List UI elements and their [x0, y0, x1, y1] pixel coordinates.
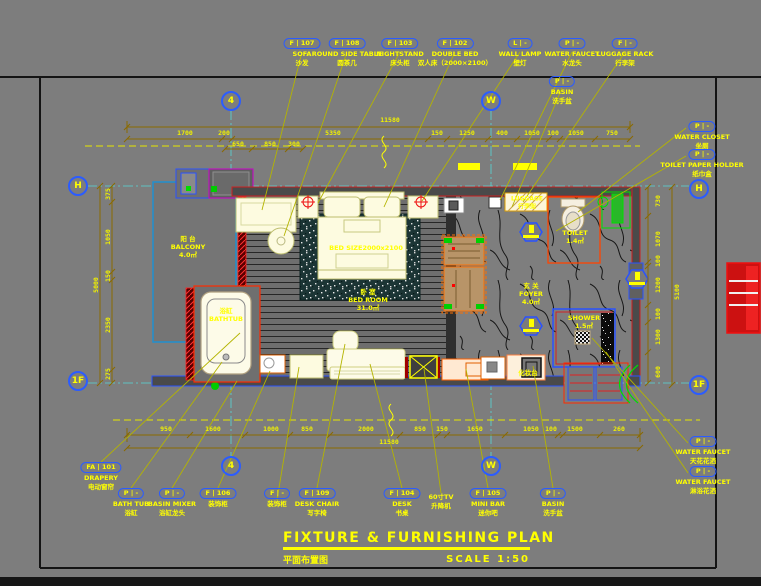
callout-bath-tub: P | - BATH TUB 浴缸	[113, 488, 149, 517]
room-label-luggage: LUGGAGE行李架	[511, 196, 543, 211]
dim-label: 750	[606, 130, 618, 137]
callout-code: P | -	[689, 121, 715, 132]
callout-nightstand: F | 103 NIGHTSTAND 床头柜	[376, 38, 424, 67]
callout-code: F | -	[612, 38, 638, 49]
callout-label-en: WATER FAUCET	[545, 50, 600, 58]
callout-code: F | 104	[384, 488, 421, 499]
callout-code: L | -	[507, 38, 533, 49]
dim-label: 1700	[177, 130, 193, 137]
dim-label: 100	[655, 255, 662, 267]
dim-label: 1300	[655, 329, 662, 345]
callout-label-en: BASIN	[551, 88, 574, 96]
callout-desk: F | 104 DESK 书桌	[384, 488, 421, 517]
callout-basin-bottom: P | - BASIN 洗手盆	[540, 488, 566, 517]
room-label-foyer: 玄 关FOYER4.0㎡	[519, 282, 543, 306]
callout-label-zh: 洗手盆	[543, 509, 563, 517]
callout-wall-lamp: L | - WALL LAMP 壁灯	[499, 38, 542, 67]
callout-label-en: WALL LAMP	[499, 50, 542, 58]
dim-label: 100	[545, 426, 557, 433]
bed-size-label: BED SIZE2000x2100	[329, 244, 403, 252]
dim-label: 850	[301, 426, 313, 433]
title-underline	[283, 547, 530, 550]
grid-bubble-1f-right: 1F	[689, 375, 709, 395]
dim-label: 850	[264, 141, 276, 148]
callout-tv-lift: 60寸TV 升降机	[428, 493, 453, 510]
callout-label-zh: 迷你吧	[478, 509, 498, 517]
callout-code: P | -	[118, 488, 144, 499]
dim-label: 150	[436, 426, 448, 433]
dim-left-total: 5000	[93, 277, 100, 293]
callout-label-en: NIGHTSTAND	[376, 50, 424, 58]
callout-label-zh: 浴缸龙头	[159, 509, 185, 517]
callout-code: F | 102	[437, 38, 474, 49]
callout-code: F | 109	[299, 488, 336, 499]
callout-label-zh: 装饰柜	[267, 500, 287, 508]
callout-label-en: SOFA	[293, 50, 312, 58]
callout-code: F | -	[264, 488, 290, 499]
dim-label: 1600	[205, 426, 221, 433]
callout-label-zh: 天花花洒	[690, 457, 716, 465]
callout-mini-bar: F | 105 MINI BAR 迷你吧	[470, 488, 507, 517]
callout-label-zh: 洗手盆	[552, 97, 572, 105]
callout-water-faucet-shower: P | - WATER FAUCET 淋浴花洒	[676, 466, 731, 495]
dim-label: 1050	[524, 130, 540, 137]
drawing-scale: SCALE 1:50	[418, 554, 530, 565]
dim-label: 150	[431, 130, 443, 137]
callout-basin-top: P | - BASIN 洗手盆	[549, 76, 575, 105]
callout-label-zh: 装饰柜	[208, 500, 228, 508]
dim-label: 260	[613, 426, 625, 433]
round-side-table	[268, 228, 294, 254]
callout-label-en: BATH TUB	[113, 500, 149, 508]
callout-round-side-table: F | 108 ROUND SIDE TABLE 圆茶几	[312, 38, 383, 67]
callout-water-closet: P | - WATER CLOSET 坐厕	[674, 121, 729, 150]
top-wall	[232, 187, 640, 196]
dim-label: 1050	[568, 130, 584, 137]
dim-bottom-total: 11580	[379, 439, 399, 446]
callout-water-faucet-top: P | - WATER FAUCET 水龙头	[545, 38, 600, 67]
grid-bubble-w-top: W	[481, 91, 501, 111]
callout-label-en: ROUND SIDE TABLE	[312, 50, 383, 58]
dim-label: 1650	[467, 426, 483, 433]
floor-plan	[152, 163, 648, 403]
drawing-title-zh: 平面布置图	[283, 553, 328, 566]
callout-label-en: MINI BAR	[471, 500, 505, 508]
callout-code: P | -	[690, 466, 716, 477]
dim-label: 730	[655, 195, 662, 207]
dim-label: 375	[105, 188, 112, 200]
room-label-shower: SHOWER1.5㎡	[568, 314, 600, 330]
dim-label: 300	[288, 141, 300, 148]
callout-toilet-paper-holder: P | - TOILET PAPER HOLDER 纸巾盒	[660, 149, 743, 178]
dim-label: 2350	[105, 317, 112, 333]
callout-label-zh: 淋浴花洒	[690, 487, 716, 495]
dim-label: 100	[547, 130, 559, 137]
callout-label-zh: 床头柜	[390, 59, 410, 67]
callout-label-zh: 书桌	[395, 509, 408, 517]
callout-code: P | -	[689, 149, 715, 160]
dim-label: 275	[105, 368, 112, 380]
room-label-bedroom: 卧 室BED ROOM31.0㎡	[348, 288, 388, 312]
callout-label-en: WATER FAUCET	[676, 448, 731, 456]
dim-label: 1050	[523, 426, 539, 433]
dim-label: 100	[655, 308, 662, 320]
tv-lift-label: 60寸TV	[428, 493, 453, 501]
callout-label-en: DRAPERY	[84, 474, 118, 482]
callout-label-en: LUGGAGE RACK	[597, 50, 654, 58]
callout-code: F | 105	[470, 488, 507, 499]
callout-drapery: FA | 101 DRAPERY 电动窗帘	[80, 462, 121, 491]
grid-bubble-w-bottom: W	[481, 456, 501, 476]
dim-label: 1000	[263, 426, 279, 433]
callout-label-zh: 行李架	[615, 59, 635, 67]
grid-bubble-4-top: 4	[221, 91, 241, 111]
grid-bubble-1f-left: 1F	[68, 371, 88, 391]
dim-label: 1070	[655, 231, 662, 247]
dim-label: 1250	[459, 130, 475, 137]
shower-drain	[575, 331, 590, 344]
callout-label-en: DESK CHAIR	[295, 500, 339, 508]
callout-code: P | -	[559, 38, 585, 49]
bathtub-room	[186, 286, 260, 382]
callout-label-en: TOILET PAPER HOLDER	[660, 161, 743, 169]
dim-label: 1500	[567, 426, 583, 433]
callout-code: F | 103	[382, 38, 419, 49]
callout-deco-cabinet-1: F | 106 装饰柜	[200, 488, 237, 508]
dim-label: 5350	[325, 130, 341, 137]
callout-code: FA | 101	[80, 462, 121, 473]
callout-desk-chair: F | 109 DESK CHAIR 写字椅	[295, 488, 339, 517]
room-label-balcony: 阳 台BALCONY4.0㎡	[171, 235, 206, 259]
dim-label: 150	[105, 270, 112, 282]
grid-bubble-4-bottom: 4	[221, 456, 241, 476]
tv-wall-cabinets	[442, 235, 486, 313]
drawing-title: FIXTURE & FURNISHING PLAN	[283, 530, 555, 546]
callout-deco-cabinet-2: F | - 装饰柜	[264, 488, 290, 508]
callout-label-zh: 壁灯	[513, 59, 526, 67]
dim-label: 650	[232, 141, 244, 148]
callout-water-faucet-ceiling: P | - WATER FAUCET 天花花洒	[676, 436, 731, 465]
dim-label: 1200	[655, 277, 662, 293]
callout-label-en: BASIN MIXER	[148, 500, 196, 508]
grid-bubble-h-left: H	[68, 176, 88, 196]
callout-label-zh: 沙发	[295, 59, 308, 67]
callout-code: P | -	[690, 436, 716, 447]
dim-label: 850	[414, 426, 426, 433]
callout-label-zh: 圆茶几	[337, 59, 357, 67]
grid-bubble-h-right: H	[689, 179, 709, 199]
room-label-bathtub: 浴缸BATHTUB	[209, 307, 243, 323]
dim-label: 2000	[358, 426, 374, 433]
callout-label-en: BASIN	[542, 500, 565, 508]
callout-label-en: WATER CLOSET	[674, 133, 729, 141]
callout-label-zh: 浴缸	[124, 509, 137, 517]
room-label-vanity: 化妆台	[518, 369, 538, 377]
callout-code: P | -	[159, 488, 185, 499]
callout-code: F | 106	[200, 488, 237, 499]
callout-label-zh: 电动窗帘	[88, 483, 114, 491]
dim-label: 200	[218, 130, 230, 137]
callout-label-zh: 水龙头	[562, 59, 582, 67]
callout-label-en: DOUBLE BED	[432, 50, 479, 58]
callout-label-zh: 双人床（2000×2100）	[418, 59, 492, 67]
dim-label: 1050	[105, 229, 112, 245]
dim-label: 400	[496, 130, 508, 137]
callout-basin-mixer: P | - BASIN MIXER 浴缸龙头	[148, 488, 196, 517]
callout-label-zh: 写字椅	[307, 509, 327, 517]
callout-code: P | -	[540, 488, 566, 499]
tv-lift-label: 升降机	[431, 502, 451, 510]
desk-chair	[333, 331, 358, 351]
dim-right-total: 5100	[674, 284, 681, 300]
cad-drawing-canvas[interactable]: 4 W H 1F H 1F 4 W F | 107 SOFA 沙发 F | 10…	[0, 0, 761, 586]
dim-top-total: 11580	[380, 117, 400, 124]
dim-label: 950	[160, 426, 172, 433]
callout-label-zh: 纸巾盒	[692, 170, 712, 178]
callout-code: F | 108	[329, 38, 366, 49]
callout-luggage-rack: F | - LUGGAGE RACK 行李架	[597, 38, 654, 67]
callout-double-bed: F | 102 DOUBLE BED 双人床（2000×2100）	[418, 38, 492, 67]
dim-label: 600	[655, 366, 662, 378]
callout-label-en: DESK	[392, 500, 412, 508]
callout-code: P | -	[549, 76, 575, 87]
callout-label-en: WATER FAUCET	[676, 478, 731, 486]
room-label-toilet: TOILET1.4㎡	[562, 229, 587, 245]
